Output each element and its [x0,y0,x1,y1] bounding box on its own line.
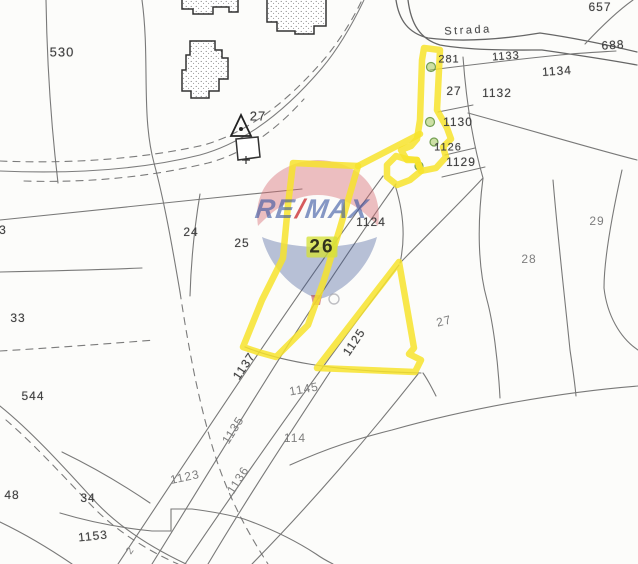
boundary-33-south-dashed [0,340,155,351]
tree-icon [427,63,436,72]
parcel-number-label: 48 [4,489,19,501]
boundary-27-28 [479,178,500,398]
remax-balloon-watermark [257,160,379,305]
parcel-number-label: 114 [284,432,306,444]
parcel-number-label: 28 [521,253,536,265]
remax-re: RE [253,194,297,225]
parcel-number-label: 1130 [443,116,473,128]
boundary-28-29 [553,180,576,396]
boundary-central-meander [142,0,180,292]
parcel-number-label: 1126 [434,143,462,154]
boundary-branch [423,373,436,396]
boundary-530-west [46,0,58,183]
boundary-1124-east [395,185,403,263]
parcel-number-label: 281 [438,55,459,66]
buildings [182,0,326,164]
parcel-number-label: 1124 [356,216,386,228]
boundary-29-east [604,170,638,350]
parcel-number-label: 657 [588,1,611,13]
trig-dot [239,127,243,131]
boundary-24-25 [190,194,200,296]
building-small-square [236,137,260,160]
cadastral-map-screenshot: RE/MAX Strada530657688281113311342727113… [0,0,638,564]
divider-1130-north [438,105,473,112]
registered-mark-icon [329,294,339,304]
parcel-number-label: 27 [250,110,266,123]
map-graphics [0,0,638,564]
building-top-2 [267,0,326,34]
boundary-33-north [0,268,142,272]
parcel-number-label: 1134 [542,64,573,78]
parcel-number-label: 688 [601,38,625,52]
parcel-number-label: 29 [589,215,604,227]
tree-icon [426,118,435,127]
strip-1137-east [152,184,396,564]
parcel-number-label: 25 [234,237,249,249]
boundary-corner-southwest [0,522,72,564]
parcel-number-label: 27 [435,313,453,328]
boundary-34-north [62,452,150,503]
parcel-number-label: 33 [10,312,25,324]
boundary-1134-south [468,113,637,160]
parcel-number-label: 27 [446,85,461,97]
boundary-long-northeast [290,386,638,465]
highlighted-parcel-number: 26 [306,237,337,258]
strip-1136-east [252,374,418,564]
parcel-number-label: 24 [183,226,198,238]
boundary-27-northeast [400,178,483,263]
parcel-number-label: 1132 [482,87,512,99]
highlight-appendix [387,156,421,185]
building-large [182,41,228,98]
parcel-number-label: 1153 [78,528,109,543]
parcel-number-label: 3 [0,224,7,236]
parcel-number-label: 34 [80,492,95,504]
parcel-number-label: 530 [50,46,75,59]
parcel-number-label: 1133 [492,51,520,64]
parcel-number-label: 544 [21,390,44,402]
building-top-1 [182,0,238,14]
parcel-number-label: 1129 [446,156,476,168]
